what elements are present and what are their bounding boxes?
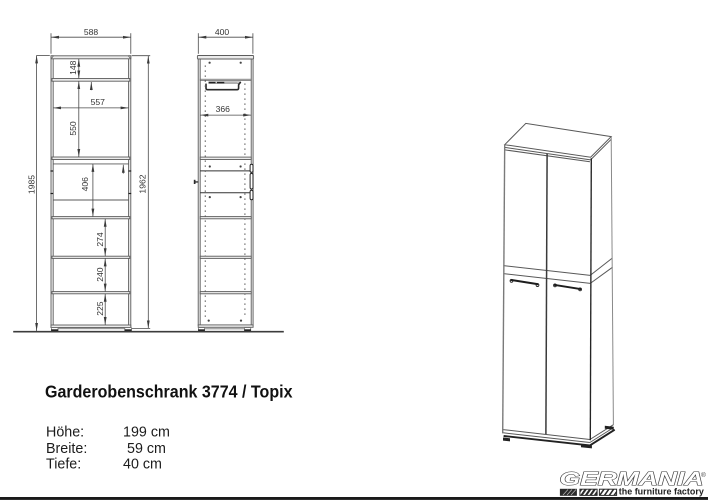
svg-text:199 cm: 199 cm — [123, 425, 170, 441]
svg-text:Höhe:: Höhe: — [46, 425, 84, 441]
svg-text:240: 240 — [95, 267, 105, 282]
svg-text:274: 274 — [95, 232, 105, 247]
svg-text:550: 550 — [68, 121, 78, 136]
svg-text:148: 148 — [68, 60, 78, 75]
svg-text:1962: 1962 — [138, 174, 148, 193]
svg-text:225: 225 — [95, 301, 105, 316]
svg-text:400: 400 — [215, 27, 230, 37]
svg-text:Garderobenschrank 3774 / Topix: Garderobenschrank 3774 / Topix — [45, 382, 293, 402]
svg-text:557: 557 — [91, 97, 106, 107]
svg-text:406: 406 — [80, 177, 90, 192]
svg-text:®: ® — [701, 471, 706, 479]
svg-text:1985: 1985 — [26, 175, 36, 194]
svg-text:the furniture factory: the furniture factory — [619, 487, 704, 497]
svg-text:588: 588 — [84, 27, 99, 37]
svg-text:59 cm: 59 cm — [127, 441, 166, 457]
svg-text:Tiefe:: Tiefe: — [46, 457, 81, 473]
svg-text:Breite:: Breite: — [46, 441, 87, 457]
svg-text:366: 366 — [216, 104, 231, 114]
svg-text:40 cm: 40 cm — [123, 457, 162, 473]
